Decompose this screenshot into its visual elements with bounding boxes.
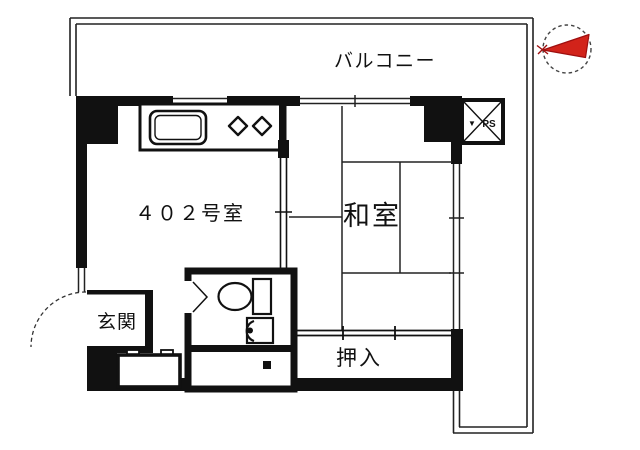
- bathroom-divider-wall: [188, 345, 294, 352]
- floor-plan-drawing: ▼ PS バルコニー ４０２号室 和室 押入 玄関: [0, 0, 640, 450]
- entrance-right-wall: [145, 290, 153, 353]
- bath-door-handle: [263, 361, 271, 369]
- closet-label: 押入: [336, 347, 382, 370]
- wall-corner-washitsu: [424, 96, 462, 142]
- entrance-side-window: [76, 268, 87, 292]
- pipe-space-label: PS: [482, 119, 496, 130]
- pipe-space-box: ▼ PS: [462, 100, 503, 143]
- wall-below-entrance: [87, 353, 117, 391]
- floor-plan-canvas: ▼ PS バルコニー ４０２号室 和室 押入 玄関: [0, 0, 640, 450]
- balcony-label: バルコニー: [334, 51, 436, 72]
- entrance-top-edge: [87, 290, 149, 295]
- kitchen-counter: [140, 104, 286, 150]
- entrance-label: 玄関: [97, 311, 137, 333]
- bathroom-door-opening: [183, 281, 192, 313]
- washbasin-icon: [247, 318, 273, 343]
- bathroom: [183, 271, 294, 389]
- pipe-space-triangle: ▼: [468, 119, 476, 128]
- room-number-label: ４０２号室: [135, 202, 245, 225]
- washitsu-window-wall: [449, 164, 464, 329]
- entrance-bottom-wall: [87, 346, 153, 353]
- shoe-cabinet-icon: [118, 350, 180, 387]
- japanese-room-label: 和室: [343, 201, 401, 231]
- wall-left: [76, 96, 87, 292]
